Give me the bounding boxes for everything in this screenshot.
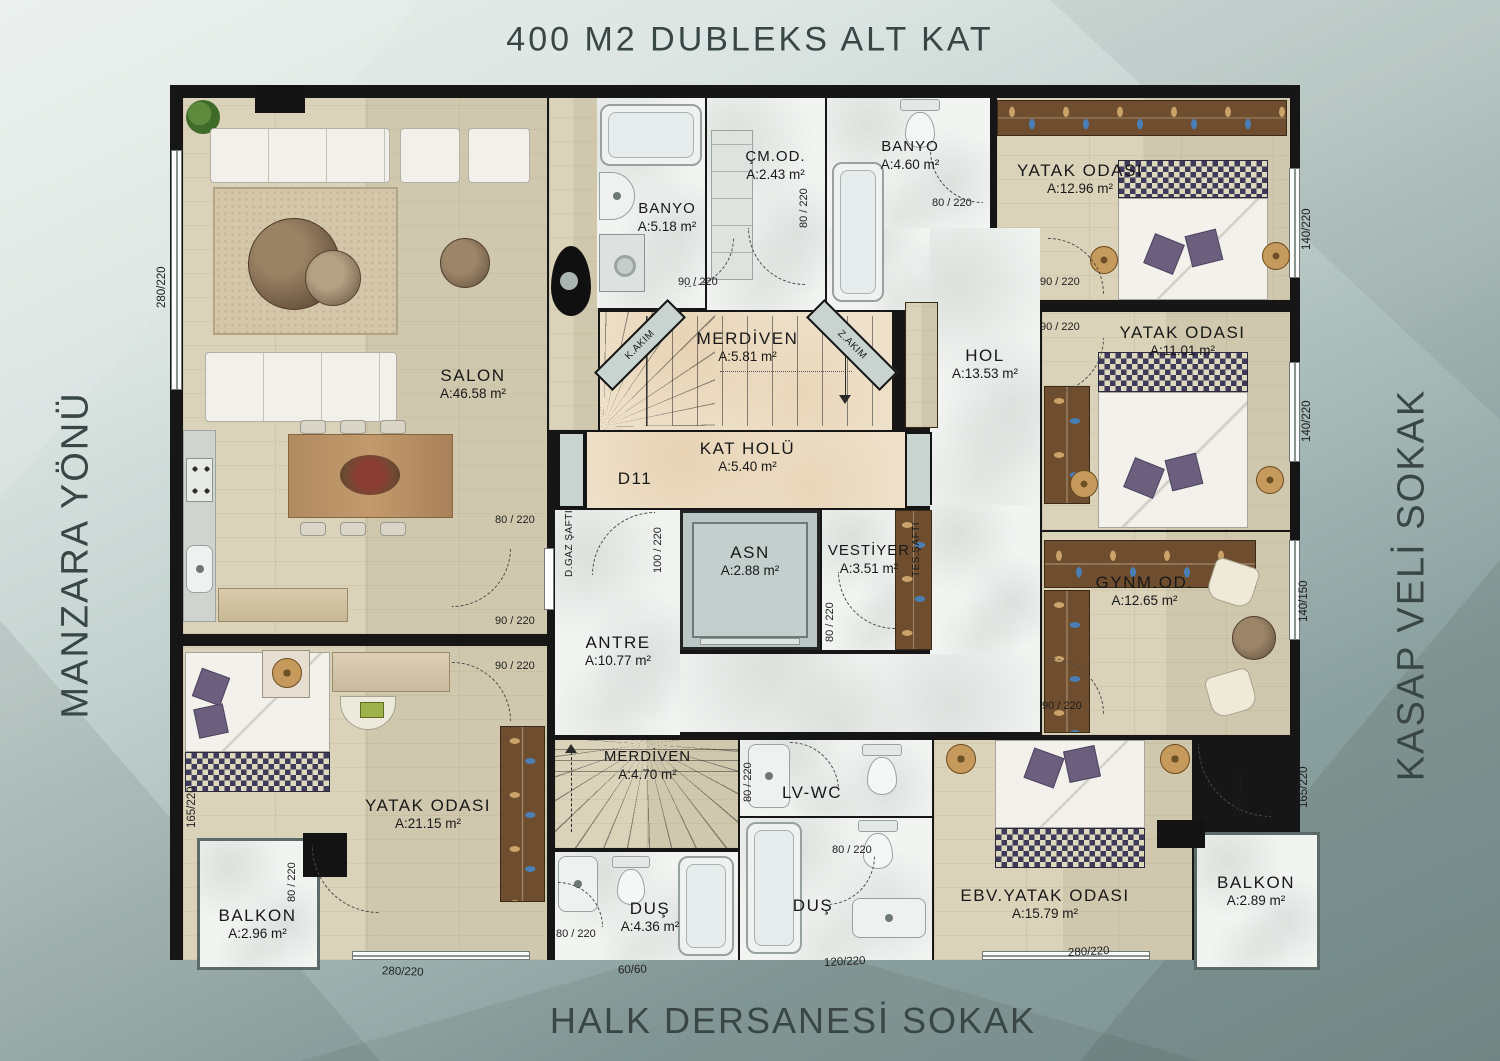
window — [1289, 168, 1300, 278]
door-size-label: 100 / 220 — [652, 515, 664, 573]
door-size-label: 80 / 220 — [1232, 756, 1244, 812]
dining-chair-icon — [300, 420, 326, 434]
dimension-label: 165/220 — [1298, 728, 1310, 808]
toilet-tank-icon — [900, 99, 940, 111]
room-label-yatak3: YATAK ODASI A:21.15 m² — [348, 795, 508, 833]
room-label-katholu: KAT HOLÜ A:5.40 m² — [660, 438, 835, 476]
toilet-tank-icon — [612, 856, 650, 868]
window — [171, 150, 182, 390]
bathtub-icon — [600, 104, 702, 166]
bathtub-icon — [746, 822, 802, 954]
dining-chair-icon — [340, 420, 366, 434]
shaft-dgaz-label: D.GAZ ŞAFTI — [564, 505, 575, 577]
wardrobe-icon — [997, 100, 1287, 136]
door-size-label: 90 / 220 — [1040, 276, 1080, 288]
floor-plan-page: { "title": "400 M2 DUBLEKS ALT KAT", "un… — [0, 0, 1500, 1061]
nightstand-icon — [1262, 242, 1290, 270]
door-size-label: 80 / 220 — [832, 844, 872, 856]
room-label-asn: ASN A:2.88 m² — [690, 542, 810, 580]
dimension-label: 140/220 — [1301, 362, 1313, 442]
room-label-salon: SALON A:46.58 m² — [398, 365, 548, 403]
door-size-label: 90 / 220 — [495, 660, 535, 672]
door-size-label: 80 / 220 — [824, 586, 836, 642]
armchair-icon — [468, 128, 530, 183]
dimension-label: 140/150 — [1298, 542, 1310, 622]
dimension-label: 120/220 — [824, 955, 866, 969]
room-label-ebvyatak: EBV.YATAK ODASI A:15.79 m² — [935, 885, 1155, 923]
stairs-guide-line — [720, 371, 852, 372]
door-size-label: 80 / 220 — [798, 176, 810, 228]
dimension-label: 280/220 — [156, 228, 168, 308]
room-label-vestiyer: VESTİYER A:3.51 m² — [814, 542, 924, 578]
stove-icon — [186, 458, 213, 502]
door-size-label: 80 / 220 — [495, 514, 535, 526]
dining-chair-icon — [340, 522, 366, 536]
armchair-icon — [400, 128, 460, 183]
door-size-label: 90 / 220 — [1042, 700, 1082, 712]
kitchen-sink-icon — [186, 545, 213, 593]
room-label-gynmod: GYNM.OD. A:12.65 m² — [1062, 572, 1227, 610]
door-size-label: 90 / 220 — [495, 615, 535, 627]
shaft-tes-label: TES.ŞAFTI — [911, 505, 922, 577]
door-size-label: 90 / 220 — [678, 276, 718, 288]
room-antre-bottom — [680, 654, 1040, 732]
street-label-right: KASAP VELİ SOKAK — [1391, 389, 1434, 781]
door-size-label: 80 / 220 — [742, 746, 754, 802]
dimension-label: 165/220 — [186, 748, 198, 828]
room-label-lvwc: LV-WC — [762, 782, 862, 803]
sink-icon — [852, 898, 926, 938]
room-balkon1 — [197, 838, 320, 970]
nightstand-icon — [1160, 744, 1190, 774]
sofa-icon — [210, 128, 390, 183]
door-size-label: 80 / 220 — [556, 928, 596, 940]
room-label-balkon1: BALKON A:2.96 m² — [200, 905, 315, 943]
street-label-bottom: HALK DERSANESİ SOKAK — [550, 1000, 1036, 1042]
dimension-label: 280/220 — [382, 965, 424, 978]
toilet-icon — [867, 757, 897, 795]
shaft-dgaz — [558, 432, 585, 508]
dimension-label: 140/220 — [1301, 170, 1313, 250]
dimension-label: 60/60 — [618, 964, 647, 977]
column — [1157, 820, 1205, 848]
nightstand-icon — [1256, 466, 1284, 494]
room-label-yatak1: YATAK ODASI A:12.96 m² — [1000, 160, 1160, 198]
centerpiece-icon — [340, 455, 400, 495]
unit-label: D11 — [605, 468, 665, 489]
bathtub-icon — [832, 162, 884, 302]
window — [1289, 362, 1300, 462]
nightstand-lamp-icon — [272, 658, 302, 688]
stairs-arrow-head — [839, 395, 851, 404]
room-label-merdiven2: MERDİVEN A:4.70 m² — [565, 748, 730, 784]
door-size-label: 80 / 220 — [286, 846, 298, 902]
dining-chair-icon — [380, 420, 406, 434]
dining-chair-icon — [300, 522, 326, 536]
room-label-banyo1: BANYO A:5.18 m² — [608, 200, 726, 236]
door-size-label: 80 / 220 — [932, 197, 972, 209]
pillow-icon — [1063, 745, 1101, 783]
nightstand-icon — [946, 744, 976, 774]
sideboard-icon — [218, 588, 348, 622]
room-label-antre: ANTRE A:10.77 m² — [556, 632, 680, 670]
dining-chair-icon — [380, 522, 406, 536]
entry-door-handle-icon — [560, 272, 578, 290]
room-label-dus2: DUŞ — [768, 895, 858, 916]
washer-icon — [599, 234, 645, 292]
toilet-tank-icon — [862, 744, 902, 756]
room-label-yatak2: YATAK ODASI A:11.01 m² — [1100, 322, 1265, 360]
plan-title: 400 M2 DUBLEKS ALT KAT — [506, 21, 993, 60]
elevator-sill — [700, 638, 800, 645]
dimension-label: 280/220 — [1068, 945, 1110, 959]
side-table-icon — [1232, 616, 1276, 660]
nightstand-icon — [1070, 470, 1098, 498]
room-label-merdiven1: MERDİVEN A:5.81 m² — [660, 328, 835, 366]
room-label-hol: HOL A:13.53 m² — [925, 345, 1045, 383]
window — [982, 951, 1150, 960]
room-label-banyo2: BANYO A:4.60 m² — [855, 138, 965, 174]
side-table-icon — [440, 238, 490, 288]
door-size-label: 90 / 220 — [1040, 321, 1080, 333]
window — [352, 951, 530, 960]
shaft-tes — [905, 432, 932, 508]
bed-blanket-icon — [185, 752, 330, 792]
desk-icon — [332, 652, 450, 692]
sofa-icon — [205, 352, 397, 422]
door-leaf — [544, 548, 554, 610]
coffee-table-icon — [305, 250, 361, 306]
room-antre-right — [930, 505, 1040, 654]
room-label-balkon2: BALKON A:2.89 m² — [1196, 872, 1316, 910]
street-label-left: MANZARA YÖNÜ — [55, 391, 98, 718]
toilet-tank-icon — [858, 820, 898, 832]
pillow-icon — [193, 703, 229, 739]
column — [255, 85, 305, 113]
bed-blanket-icon — [995, 828, 1145, 868]
room-label-dus1: DUŞ A:4.36 m² — [600, 898, 700, 936]
tablet-icon — [360, 702, 384, 718]
